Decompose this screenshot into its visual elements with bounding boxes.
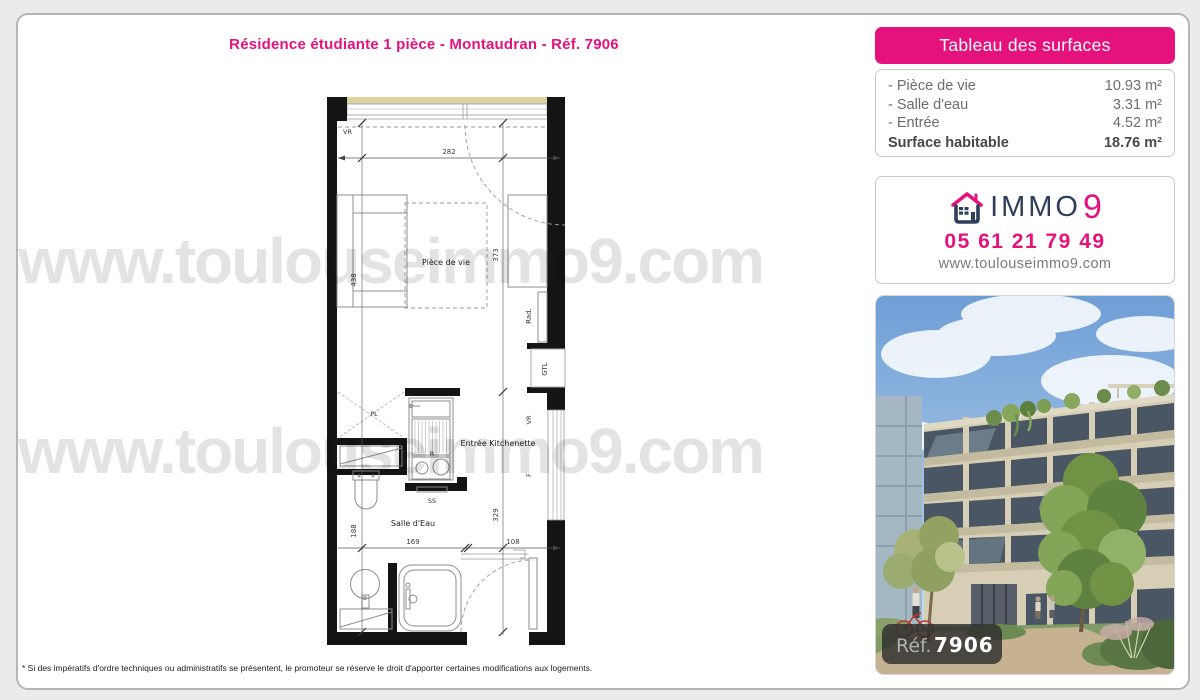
label-f-right: F	[525, 473, 533, 477]
right-window	[548, 410, 564, 520]
floor-plan: VR 282 438 Pièce de vie 373 Rad. GTL PL …	[325, 95, 595, 645]
ref-number: 7906	[934, 633, 994, 657]
label-entree-kitchenette: Entrée Kitchenette	[461, 438, 536, 448]
surfaces-header: Tableau des surfaces	[875, 27, 1175, 64]
building-photo-svg: Réf. 7906	[876, 296, 1175, 675]
label-pl: PL	[370, 410, 378, 418]
surface-total-label: Surface habitable	[888, 134, 1009, 153]
table-row: - Pièce de vie 10.93 m²	[888, 77, 1162, 96]
label-gtl: GTL	[541, 362, 549, 375]
brand-immo-text: IMMO	[990, 191, 1081, 224]
agency-website: www.toulouseimmo9.com	[939, 256, 1112, 272]
dim-169: 169	[406, 538, 419, 546]
surface-value: 3.31 m²	[1113, 96, 1162, 115]
surface-label: - Pièce de vie	[888, 77, 976, 96]
label-piece-de-vie: Pièce de vie	[422, 257, 470, 267]
label-vr-top: VR	[343, 128, 352, 136]
agency-phone: 05 61 21 79 49	[944, 230, 1105, 254]
dim-329: 329	[492, 508, 500, 521]
surfaces-table: - Pièce de vie 10.93 m² - Salle d'eau 3.…	[875, 69, 1175, 157]
disclaimer-text: * Si des impératifs d'ordre techniques o…	[22, 663, 592, 673]
surface-label: - Entrée	[888, 114, 940, 133]
top-window	[347, 97, 547, 119]
surface-value: 4.52 m²	[1113, 114, 1162, 133]
kitchen-drainer-hatch	[415, 421, 447, 453]
agency-logo: IMMO 9	[948, 188, 1102, 227]
dim-282: 282	[442, 148, 455, 156]
dim-438: 438	[350, 273, 358, 286]
floor-plan-svg: VR 282 438 Pièce de vie 373 Rad. GTL PL …	[325, 95, 595, 645]
label-ss: SS	[428, 497, 436, 505]
dim-373: 373	[492, 248, 500, 261]
label-r: R	[430, 450, 435, 458]
dim-188: 188	[350, 524, 358, 537]
dimension-lines	[338, 119, 560, 636]
dim-108: 108	[506, 538, 519, 546]
page-title: Résidence étudiante 1 pièce - Montaudran…	[0, 36, 848, 53]
ref-label: Réf.	[896, 635, 931, 657]
label-rad: Rad.	[525, 308, 533, 324]
brand-nine-text: 9	[1083, 188, 1102, 227]
surface-label: - Salle d'eau	[888, 96, 968, 115]
label-vr-right: VR	[525, 415, 533, 424]
surface-total-value: 18.76 m²	[1104, 134, 1162, 153]
ref-badge: Réf. 7906	[882, 624, 1002, 664]
building-photo: Réf. 7906	[875, 295, 1175, 675]
table-row: - Salle d'eau 3.31 m²	[888, 96, 1162, 115]
table-row-total: Surface habitable 18.76 m²	[888, 134, 1162, 153]
label-salle-deau: Salle d'Eau	[391, 519, 435, 528]
house-logo-icon	[948, 190, 986, 226]
surface-value: 10.93 m²	[1105, 77, 1162, 96]
agency-card: IMMO 9 05 61 21 79 49 www.toulouseimmo9.…	[875, 176, 1175, 284]
table-row: - Entrée 4.52 m²	[888, 114, 1162, 133]
